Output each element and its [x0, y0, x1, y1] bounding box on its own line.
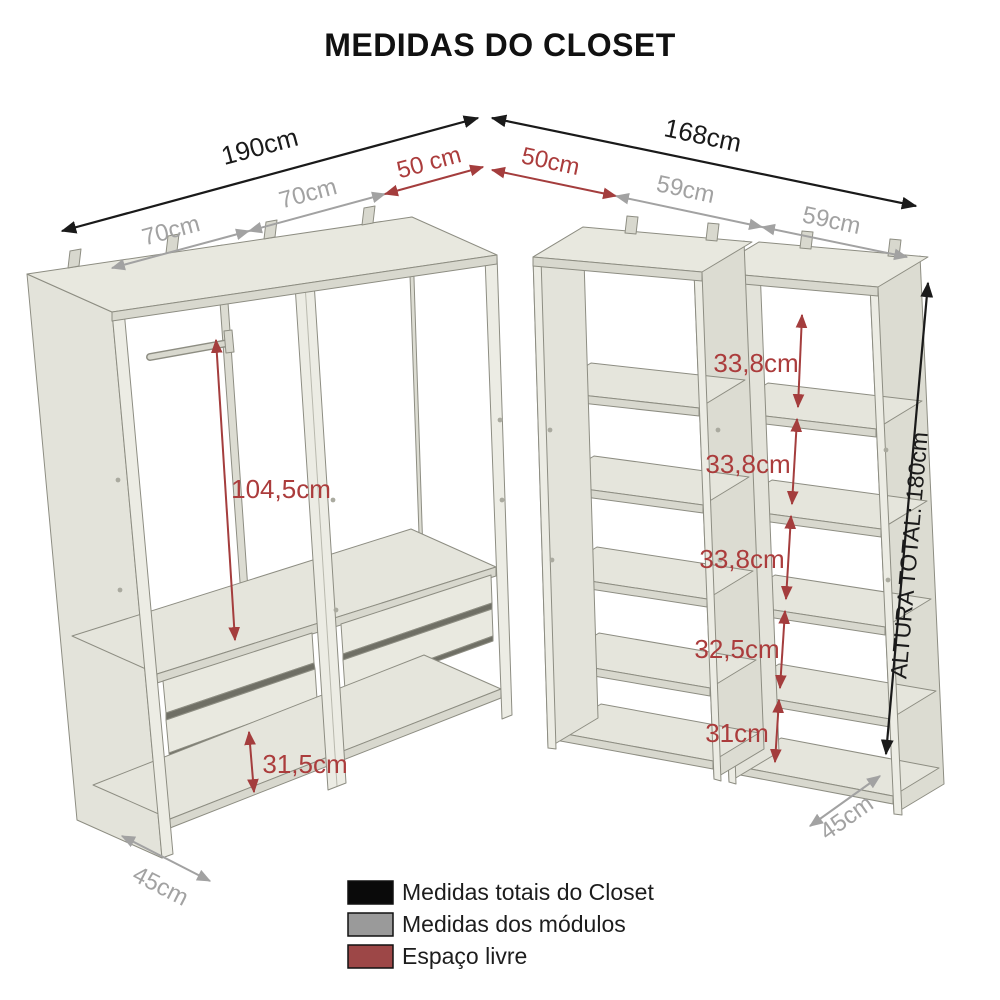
- legend-swatch-free: [348, 945, 393, 968]
- legend-swatch-modules: [348, 913, 393, 936]
- closet-dimensions-diagram: 190cm 168cm 70cm 70cm 50 cm 50cm 59cm 59…: [0, 0, 1000, 1000]
- dim-label-free-left: 50 cm: [394, 141, 464, 184]
- dim-label-total-right: 168cm: [662, 112, 745, 158]
- dim-label-module-59a: 59cm: [654, 170, 717, 209]
- legend: Medidas totais do Closet Medidas dos mód…: [348, 879, 654, 969]
- dim-label-shelf-gap-5: 31cm: [705, 718, 769, 748]
- dim-label-bottom-gap: 31,5cm: [262, 749, 347, 779]
- diagram-canvas: 190cm 168cm 70cm 70cm 50 cm 50cm 59cm 59…: [0, 0, 1000, 1000]
- legend-item: Espaço livre: [348, 943, 527, 969]
- legend-swatch-total: [348, 881, 393, 904]
- legend-item: Medidas dos módulos: [348, 911, 626, 937]
- dim-label-shelf-gap-1: 33,8cm: [713, 348, 798, 378]
- hanging-rod-icon: [150, 330, 234, 357]
- dim-label-shelf-gap-2: 33,8cm: [705, 449, 790, 479]
- legend-label-modules: Medidas dos módulos: [402, 911, 626, 937]
- dim-label-total-left: 190cm: [218, 122, 301, 171]
- dim-label-hanging-height: 104,5cm: [231, 474, 331, 504]
- page-title: MEDIDAS DO CLOSET: [324, 27, 676, 63]
- legend-label-free: Espaço livre: [402, 943, 527, 969]
- dim-label-free-right: 50cm: [519, 142, 582, 181]
- dim-label-shelf-gap-3: 33,8cm: [699, 544, 784, 574]
- legend-label-total: Medidas totais do Closet: [402, 879, 654, 905]
- legend-item: Medidas totais do Closet: [348, 879, 654, 905]
- dim-label-depth-left: 45cm: [128, 861, 193, 912]
- dim-label-shelf-gap-4: 32,5cm: [694, 634, 779, 664]
